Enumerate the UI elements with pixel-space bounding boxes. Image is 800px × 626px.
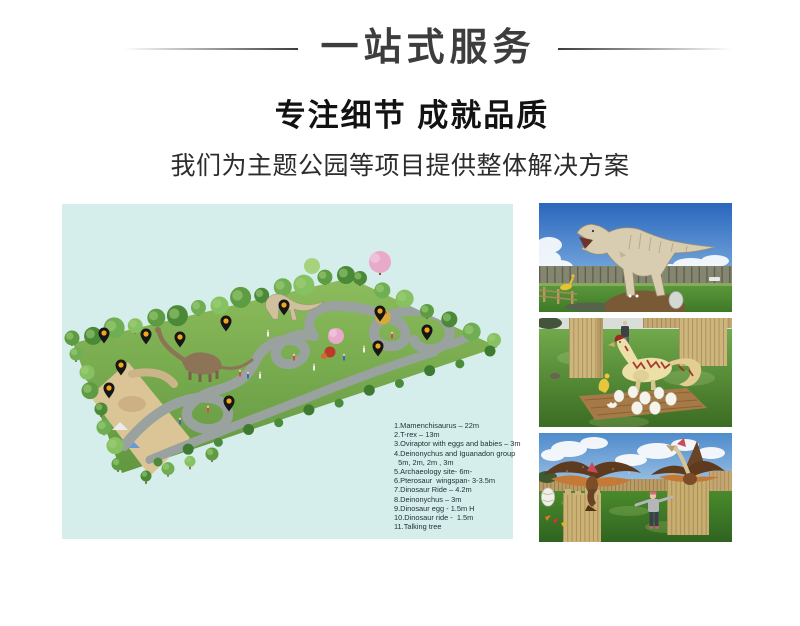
- log-pillar-left: [563, 488, 601, 542]
- header: 一站式服务: [28, 0, 800, 70]
- park-map-illustration: 1.Mamenchisaurus – 22m2.T-rex – 13m3.Ovi…: [62, 204, 513, 539]
- map-pin-icon: [372, 340, 384, 357]
- map-pin-icon: [278, 299, 290, 316]
- legend-item: 8.Deinonychus – 3m: [394, 495, 521, 504]
- legend-item: 2.T-rex – 13m: [394, 430, 521, 439]
- photo-oviraptor-eggs: [539, 318, 732, 427]
- map-pin-icon: [140, 328, 152, 345]
- title-left-line: [124, 48, 298, 50]
- map-pin-icon: [374, 305, 386, 322]
- title-right-line: [558, 48, 732, 50]
- white-bird: [629, 295, 632, 298]
- map-pin-icon: [98, 327, 110, 344]
- rock: [669, 292, 683, 309]
- page-title: 一站式服务: [320, 28, 535, 70]
- tagline: 我们为主题公园等项目提供整体解决方案: [0, 146, 800, 182]
- legend-item: 9.Dinosaur egg - 1.5m H: [394, 504, 521, 513]
- map-pin-icon: [174, 331, 186, 348]
- map-pin-icon: [223, 395, 235, 412]
- egg-sculpture: [542, 488, 555, 506]
- white-bird: [636, 295, 639, 298]
- legend-item: 11.Talking tree: [394, 522, 521, 531]
- map-pin-icon: [421, 324, 433, 341]
- subtitle: 专注细节 成就品质: [12, 90, 800, 135]
- white-car: [709, 277, 720, 281]
- photo-trex: [539, 203, 732, 312]
- legend-item: 10.Dinosaur ride - 1.5m: [394, 513, 521, 522]
- log-pillar-left: [569, 318, 603, 378]
- legend-item: 4.Deinonychus and Iguanadon group: [394, 449, 521, 458]
- page: 一站式服务 专注细节 成就品质 我们为主题公园等项目提供整体解决方案: [0, 0, 800, 626]
- legend-item: 5m, 2m, 2m , 3m: [394, 458, 521, 467]
- legend-item: 5.Archaeology site- 6m-: [394, 467, 521, 476]
- beanie: [650, 492, 657, 495]
- legend-item: 1.Mamenchisaurus – 22m: [394, 421, 521, 430]
- map-pin-icon: [115, 359, 127, 376]
- legend-item: 6.Pterosaur wingspan- 3-3.5m: [394, 476, 521, 485]
- legend-item: 3.Oviraptor with eggs and babies – 3m: [394, 439, 521, 448]
- legend-item: 7.Dinosaur Ride – 4.2m: [394, 485, 521, 494]
- rock: [550, 373, 560, 379]
- map-pin-icon: [220, 315, 232, 332]
- map-legend: 1.Mamenchisaurus – 22m2.T-rex – 13m3.Ovi…: [394, 421, 521, 531]
- map-pin-icon: [103, 382, 115, 399]
- photo-pterosaurs: [539, 433, 732, 542]
